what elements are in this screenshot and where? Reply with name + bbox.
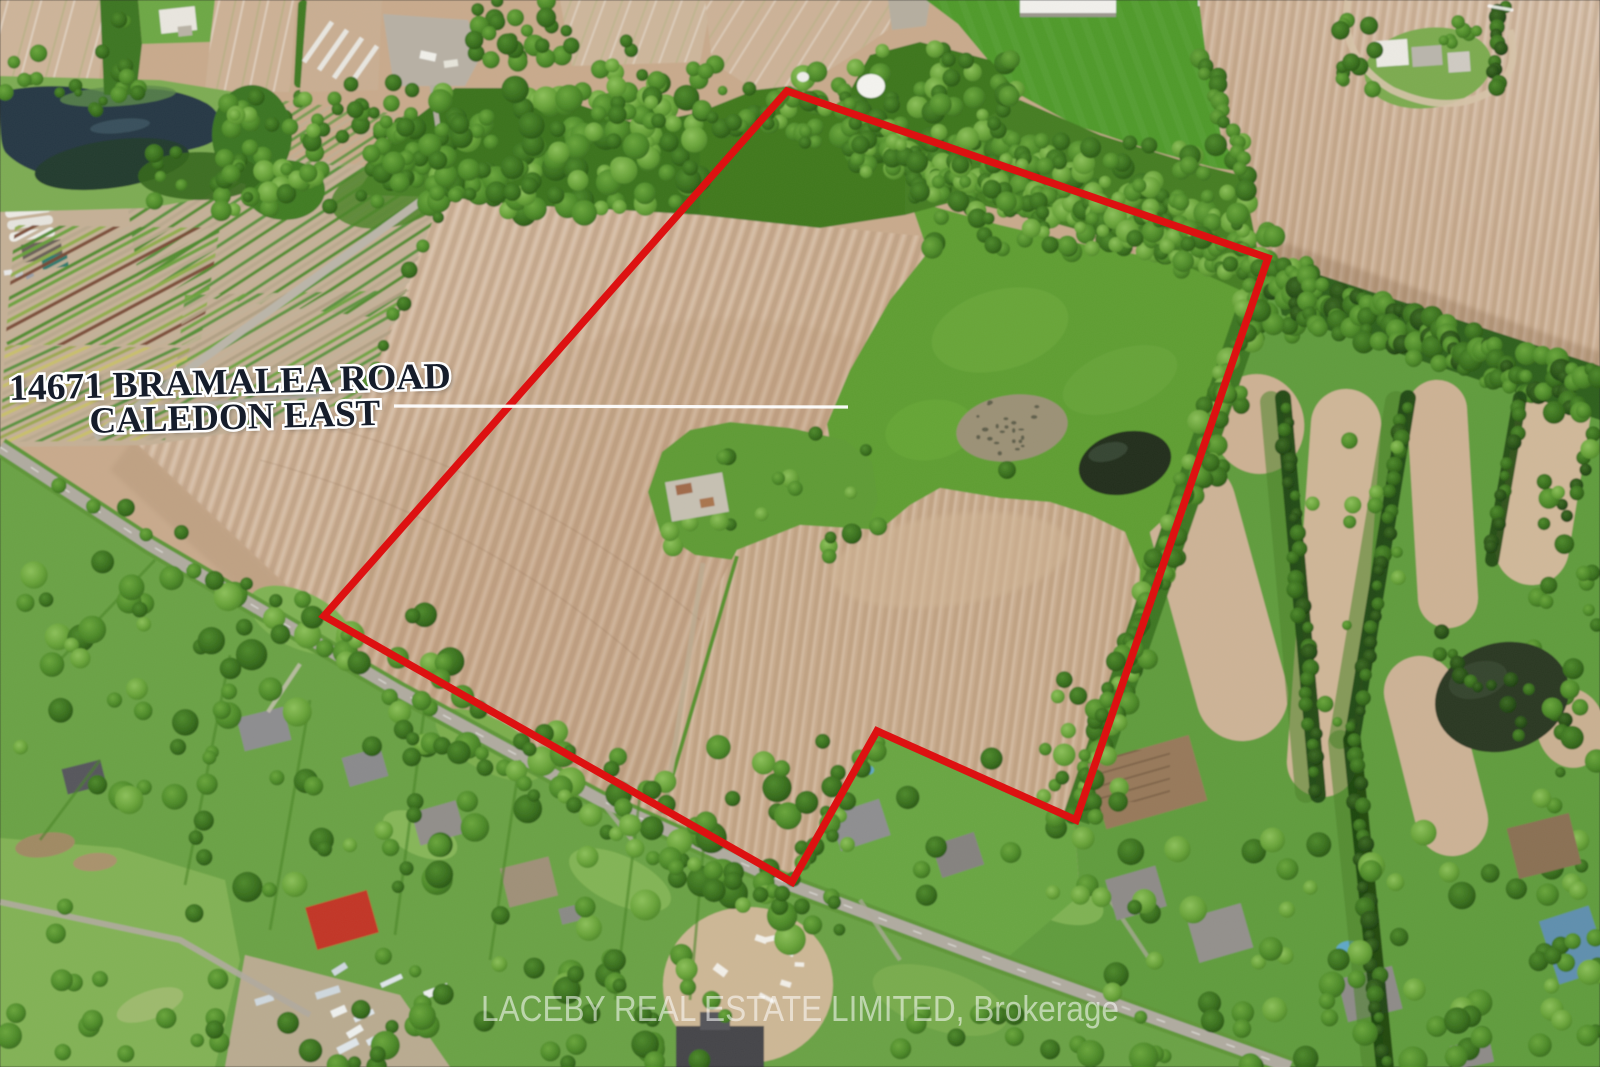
- svg-text:LACEBY REAL ESTATE LIMITED, Br: LACEBY REAL ESTATE LIMITED, Brokerage: [481, 988, 1119, 1029]
- svg-text:CALEDON EAST: CALEDON EAST: [89, 393, 381, 442]
